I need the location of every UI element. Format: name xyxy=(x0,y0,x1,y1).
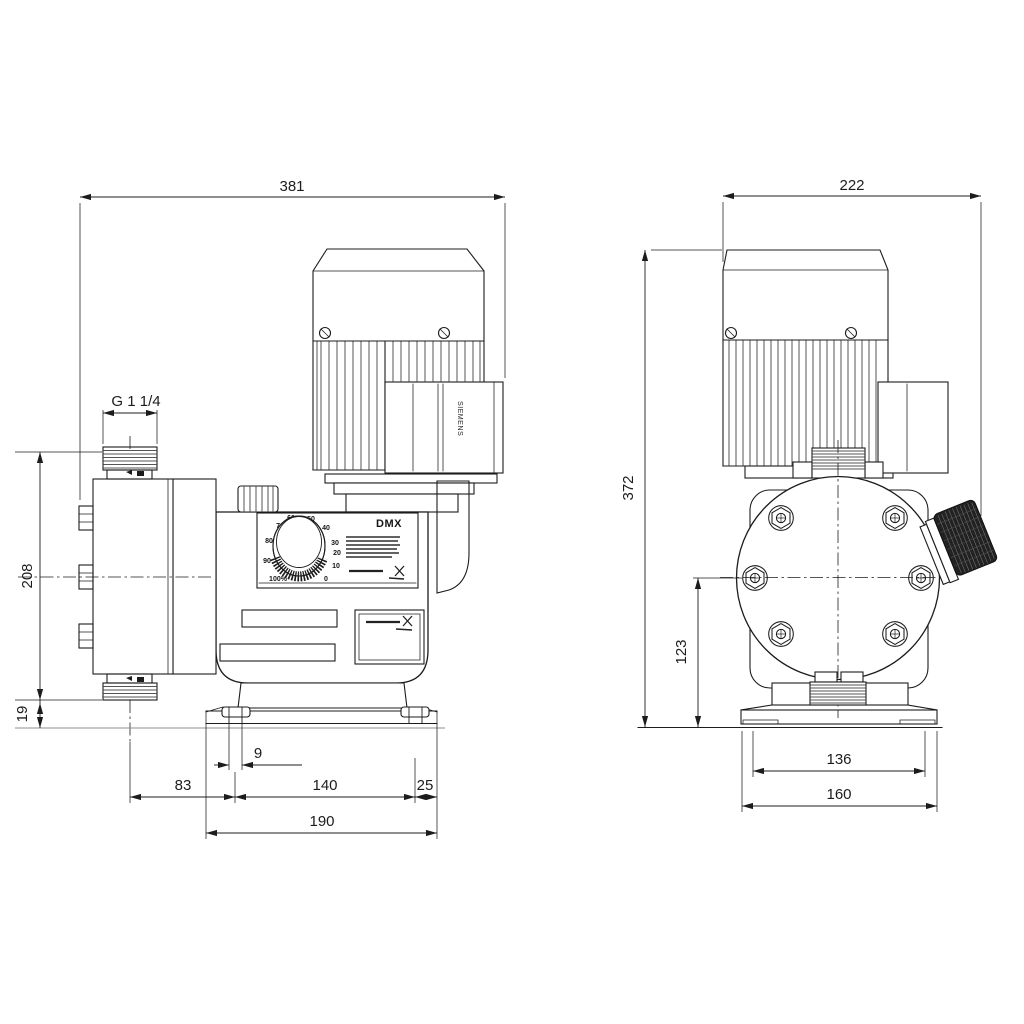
dim-side-base-width: 160 xyxy=(742,731,937,812)
dim-total-height: 372 xyxy=(620,250,722,727)
terminal-box-side xyxy=(878,382,948,473)
dim-83: 83 xyxy=(175,777,192,794)
dim-slot-to-edge: 25 xyxy=(415,777,437,800)
dim-381: 381 xyxy=(279,178,304,195)
dim-136: 136 xyxy=(826,751,851,768)
dial-label-20: 20 xyxy=(333,550,341,557)
nameplate xyxy=(355,610,424,664)
dim-side-slot-spacing: 136 xyxy=(753,731,925,777)
pump-body-front: 100% 90 80 70 60 50 40 30 20 10 0 xyxy=(216,486,428,683)
dial-label-40: 40 xyxy=(322,525,330,532)
dim-25: 25 xyxy=(417,777,434,794)
dial-label-80: 80 xyxy=(265,538,273,545)
model-label: DMX xyxy=(376,518,402,530)
dim-thread-size: G 1 1/4 xyxy=(103,393,161,444)
base-side xyxy=(638,683,942,728)
dim-208: 208 xyxy=(19,563,36,588)
dim-center-to-slot: 83 xyxy=(130,742,235,803)
dial-label-10: 10 xyxy=(332,563,340,570)
dim-g114: G 1 1/4 xyxy=(111,393,160,410)
suction-connection xyxy=(103,674,157,700)
front-view: SIEMENS 100% 90 xyxy=(14,178,505,839)
discharge-connection xyxy=(103,447,157,479)
dosing-dial-knob[interactable] xyxy=(273,516,325,576)
dim-base-height: 19 xyxy=(14,700,43,728)
side-view: 222 372 123 136 xyxy=(620,177,999,812)
motor-brand-label: SIEMENS xyxy=(456,401,465,436)
dim-123: 123 xyxy=(673,639,690,664)
terminal-box-front: SIEMENS xyxy=(385,382,503,473)
motor-side xyxy=(723,250,948,478)
motor-fins-side xyxy=(723,340,888,466)
control-panel: 100% 90 80 70 60 50 40 30 20 10 0 xyxy=(257,513,418,588)
dosing-head-front xyxy=(18,436,216,742)
dim-190: 190 xyxy=(309,813,334,830)
dim-base-width-front: 190 xyxy=(206,711,437,839)
dim-160: 160 xyxy=(826,786,851,803)
dim-slot-width: 9 xyxy=(214,724,302,770)
dim-222: 222 xyxy=(839,177,864,194)
dmx-pump-dimensional-drawing: SIEMENS 100% 90 xyxy=(0,0,1024,1024)
technical-drawing-page: SIEMENS 100% 90 xyxy=(0,0,1024,1024)
dim-centerline-height: 123 xyxy=(673,578,742,727)
stroke-length-knob xyxy=(238,486,278,512)
dim-9: 9 xyxy=(254,745,262,762)
dial-label-30: 30 xyxy=(331,540,339,547)
dim-372: 372 xyxy=(620,475,637,500)
dim-head-height: 208 xyxy=(15,452,102,700)
dial-label-0: 0 xyxy=(324,576,328,583)
dial-label-90: 90 xyxy=(263,558,271,565)
base-front xyxy=(15,683,445,728)
dim-19: 19 xyxy=(14,706,31,723)
dim-140: 140 xyxy=(312,777,337,794)
